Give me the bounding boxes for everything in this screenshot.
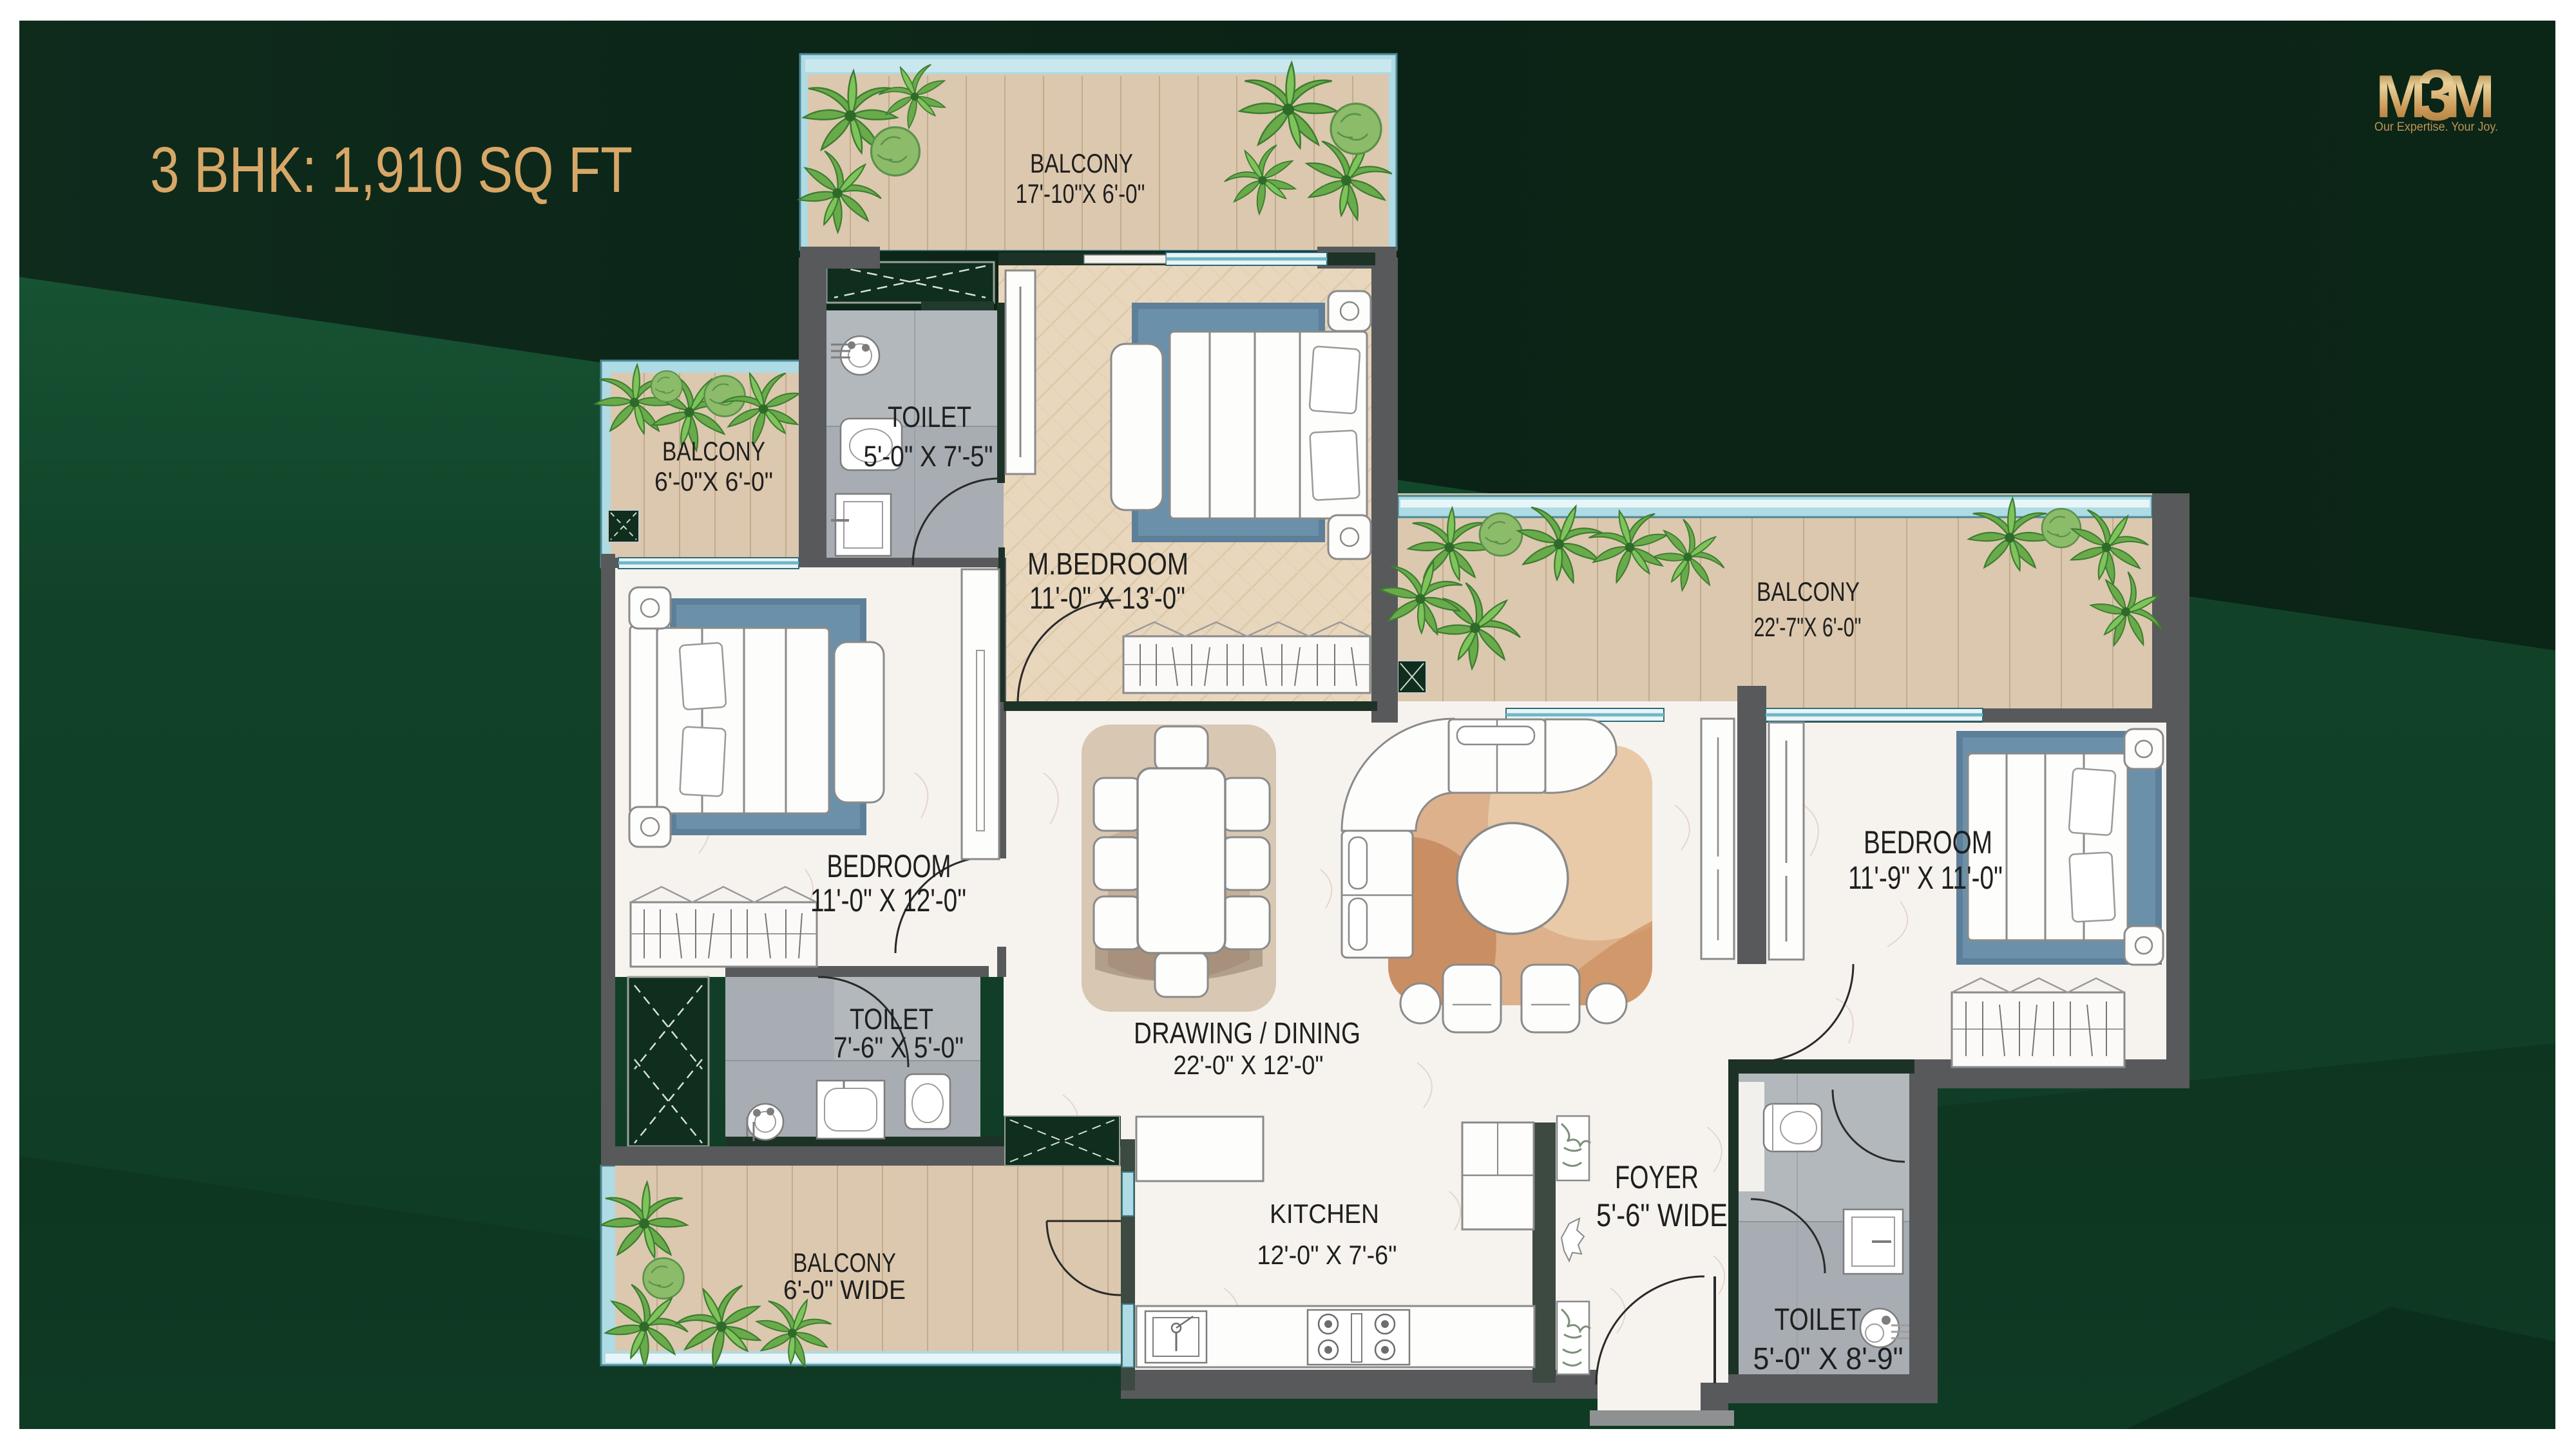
- svg-text:6'-0"X 6'-0": 6'-0"X 6'-0": [654, 466, 773, 497]
- svg-text:3 BHK: 1,910 SQ FT: 3 BHK: 1,910 SQ FT: [150, 134, 633, 206]
- svg-text:BALCONY: BALCONY: [1757, 576, 1860, 607]
- svg-text:22'-7"X 6'-0": 22'-7"X 6'-0": [1754, 612, 1862, 642]
- svg-text:M.BEDROOM: M.BEDROOM: [1027, 547, 1188, 582]
- svg-text:11'-0" X 12'-0": 11'-0" X 12'-0": [810, 882, 966, 918]
- svg-text:BALCONY: BALCONY: [662, 436, 765, 466]
- svg-text:5'-6" WIDE: 5'-6" WIDE: [1596, 1197, 1728, 1233]
- svg-text:DRAWING / DINING: DRAWING / DINING: [1134, 1016, 1360, 1050]
- svg-text:TOILET: TOILET: [1775, 1303, 1862, 1337]
- svg-text:TOILET: TOILET: [888, 401, 971, 433]
- svg-text:6'-0" WIDE: 6'-0" WIDE: [783, 1274, 906, 1305]
- svg-text:BALCONY: BALCONY: [793, 1247, 896, 1278]
- svg-text:22'-0" X 12'-0": 22'-0" X 12'-0": [1174, 1050, 1324, 1080]
- svg-text:11'-9" X 11'-0": 11'-9" X 11'-0": [1848, 860, 2003, 896]
- svg-text:KITCHEN: KITCHEN: [1270, 1198, 1379, 1229]
- svg-text:5'-0" X 8'-9": 5'-0" X 8'-9": [1753, 1342, 1903, 1376]
- svg-text:7'-6" X 5'-0": 7'-6" X 5'-0": [834, 1031, 964, 1064]
- svg-text:17'-10"X 6'-0": 17'-10"X 6'-0": [1016, 178, 1145, 209]
- svg-text:BEDROOM: BEDROOM: [827, 848, 951, 884]
- svg-text:11'-0" X 13'-0": 11'-0" X 13'-0": [1029, 582, 1185, 616]
- svg-text:12'-0" X 7'-6": 12'-0" X 7'-6": [1257, 1240, 1397, 1270]
- svg-text:BEDROOM: BEDROOM: [1864, 824, 1992, 860]
- svg-text:FOYER: FOYER: [1615, 1159, 1699, 1195]
- svg-text:BALCONY: BALCONY: [1030, 148, 1133, 178]
- svg-text:Our Expertise. Your Joy.: Our Expertise. Your Joy.: [2374, 120, 2498, 134]
- svg-text:5'-0" X 7'-5": 5'-0" X 7'-5": [864, 440, 993, 473]
